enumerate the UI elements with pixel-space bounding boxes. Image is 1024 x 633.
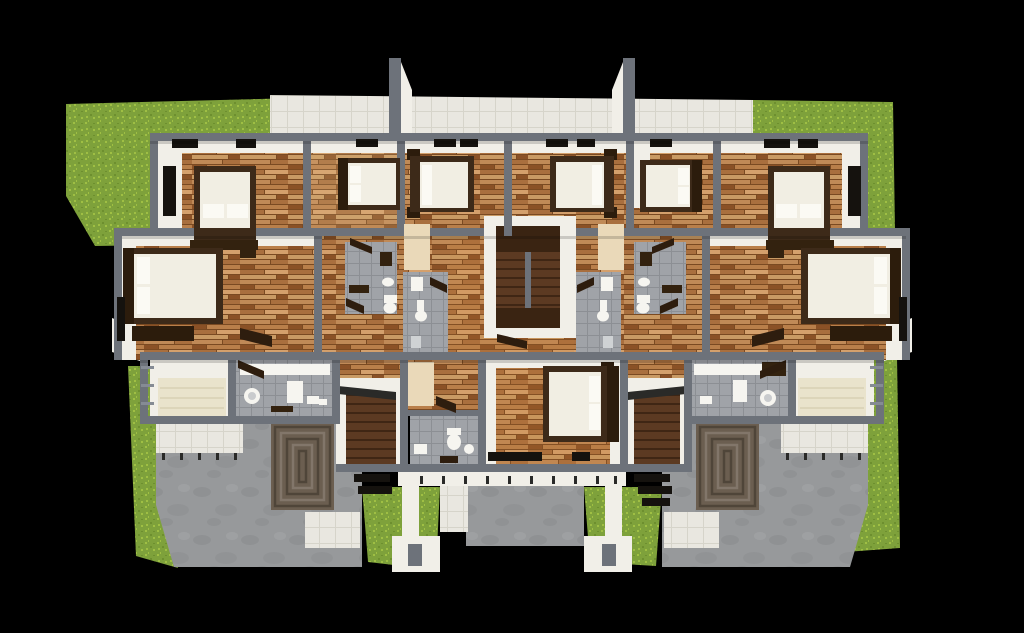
nightstand [768,246,784,258]
party-wall-slab-left [389,58,401,136]
toilet-tank [600,300,607,311]
stairwell-left [336,378,406,472]
railing-post [216,453,219,460]
cabinet [411,277,423,291]
pillow [874,257,887,284]
pillow [137,257,150,284]
railing-post [574,476,577,484]
railing-post [552,476,555,484]
pillow [874,287,887,314]
deck-slot [354,474,390,482]
nightstand [240,246,256,258]
railing-post [858,453,861,460]
wall-segment [576,228,906,236]
wall-segment [860,133,868,236]
wall-segment [150,133,158,236]
shadow [140,360,884,363]
window [848,166,861,216]
patio-left-tile-pad [305,512,360,548]
bath-mat [440,456,458,463]
pillow [678,187,689,204]
railing-post [442,476,445,484]
bench [132,326,194,341]
deck-slot [358,486,392,494]
bed-mattress [200,172,250,228]
shelf [662,285,682,293]
shadow [122,236,906,239]
wall-segment [684,352,692,472]
toilet-tank [447,428,461,435]
pillow [589,376,600,402]
sink [638,278,650,287]
wall-segment [140,352,884,360]
railing-post [840,453,843,460]
stair-lower-landing [496,308,560,322]
railing-post [464,476,467,484]
patio-right-tile-pad [664,512,719,548]
wall-ledge-mark [141,402,154,405]
toilet [733,380,747,402]
bed-2 [338,158,400,210]
toilet [637,303,650,314]
pillow [350,185,361,202]
deck-slot [642,498,670,506]
wall-segment [336,464,690,472]
pillow [203,204,224,218]
stairwell-central [484,216,576,338]
toilet [287,381,303,403]
pillow [592,165,602,205]
pillow [776,204,797,218]
washer-door [248,392,256,400]
wardrobe-right [598,224,624,270]
washer-door [764,394,772,402]
wall-ledge-mark [141,366,154,369]
center-ground-tiles [440,486,468,532]
railing-post [234,453,237,460]
wall-segment [626,133,634,236]
towel-rack [640,252,652,266]
balcony-deck [398,472,626,486]
shower-tray [411,336,421,348]
toilet [447,434,461,450]
headboard [692,160,702,212]
pillow [137,287,150,314]
wall-segment [688,416,884,424]
pillow [350,166,361,183]
ledge-left-tiles [156,420,243,453]
window [163,166,176,216]
bed-mattress [774,172,824,228]
bed-bottom [543,362,619,442]
bed-3 [407,149,474,218]
wall-segment [400,352,408,472]
floor-plan-render [0,0,1024,633]
headboard [338,158,348,210]
cabinet [601,277,613,291]
bath-accessory [319,399,327,405]
entry-pier-left-notch [408,544,422,566]
bath-accessory [700,396,712,404]
rear-walkway-tiles [270,95,753,136]
wall-segment [713,133,721,236]
brick-spiral-right [696,423,759,510]
wall-ledge-mark [870,402,883,405]
floor-slot [488,452,542,461]
pillow [422,165,432,205]
ledge-right-tiles [781,420,868,453]
wall-segment [314,228,322,360]
floor-plan-scene [0,0,1024,633]
wall-segment [140,416,336,424]
railing-post [530,476,533,484]
railing-post [180,453,183,460]
pillow [800,204,821,218]
bed-4 [550,149,617,218]
toilet-tank [637,295,650,303]
bath-accessory [464,444,474,454]
toilet-tank [417,300,424,311]
shower-tray [603,336,613,348]
toilet [415,311,427,322]
wall-segment [303,133,311,236]
wall-ledge-mark [870,366,883,369]
wall-ledge-mark [141,384,154,387]
window [899,297,907,341]
bench [830,326,892,341]
railing-post [486,476,489,484]
center-ground-concrete [466,486,584,546]
pillow [227,204,248,218]
wall-segment [478,352,486,472]
pillow [589,404,600,430]
wall-ledge-mark [870,384,883,387]
wall-segment [702,228,710,360]
wall-face [486,358,496,466]
sink [414,444,427,454]
stair-center-rail [525,252,531,308]
pillow [678,168,689,185]
wardrobe-left [404,224,430,270]
wall-segment [504,133,512,236]
wall-segment [406,410,480,416]
shelf [349,285,369,293]
railing-post [508,476,511,484]
party-wall-slab-right [623,58,635,136]
toilet-tank [384,295,397,303]
railing-post [614,476,617,484]
entry-pier-right-notch [602,544,616,566]
bed-5 [640,160,702,212]
railing-post [804,453,807,460]
wall-segment [620,352,628,472]
railing-post [162,453,165,460]
wardrobe-closet [408,362,434,406]
toilet [597,311,609,322]
railing-post [420,476,423,484]
stair-treads [346,394,396,464]
deck-slot [638,486,672,494]
toilet [384,303,397,314]
railing-post [596,476,599,484]
bath-accessory [307,396,319,404]
floor-slot [572,452,590,461]
shadow [150,141,868,144]
stairwell-right [628,378,686,472]
bath-mat [271,406,293,412]
deck-slot [634,474,670,482]
stair-treads [634,394,680,464]
railing-post [786,453,789,460]
sink [382,278,394,287]
window [117,297,125,341]
railing-post [822,453,825,460]
towel-rack [380,252,392,266]
railing-post [198,453,201,460]
brick-spiral-left [271,423,334,510]
headboard [607,366,619,442]
